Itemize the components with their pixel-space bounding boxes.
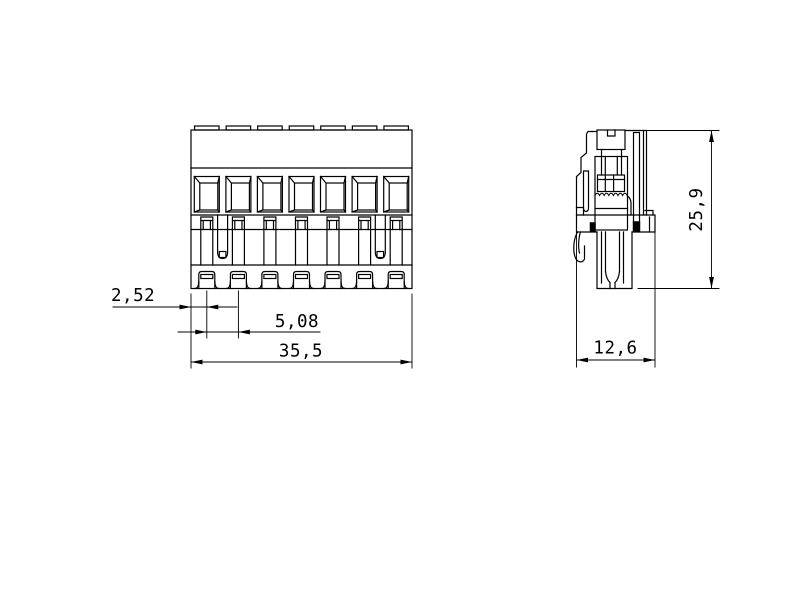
dim-label-overall-width: 35,5	[279, 342, 323, 362]
side-view	[574, 130, 655, 289]
side-view-body-outline	[574, 130, 655, 289]
dimension-overall-width: 35,5	[191, 342, 412, 365]
dim-label-height: 25,9	[687, 187, 707, 231]
dimension-depth: 12,6	[577, 339, 656, 363]
front-view-housing-outline	[191, 130, 412, 289]
terminal-position-5	[321, 126, 346, 289]
terminal-position-1	[194, 126, 219, 289]
dim-label-pin-offset: 2,52	[111, 286, 155, 306]
clamp-foot-left	[590, 223, 596, 233]
dimension-height: 25,9	[687, 131, 714, 289]
clamp-foot-right	[633, 222, 640, 233]
front-view	[191, 126, 412, 289]
coding-slot-right	[375, 215, 385, 259]
dimension-pitch: 5,08	[178, 312, 320, 334]
dim-label-pitch: 5,08	[275, 312, 319, 332]
coding-slot-left	[218, 215, 228, 259]
terminal-position-2	[226, 126, 251, 289]
drawing-sheet: 2,52 5,08 35,5 12,6 25,9	[0, 0, 800, 600]
dim-label-depth: 12,6	[593, 339, 637, 359]
terminal-position-3	[257, 126, 282, 289]
technical-drawing: 2,52 5,08 35,5 12,6 25,9	[0, 0, 800, 600]
terminal-position-4	[289, 126, 314, 289]
terminal-position-7	[384, 126, 409, 289]
dimension-pin-offset: 2,52	[111, 286, 237, 309]
terminal-position-6	[352, 126, 377, 289]
